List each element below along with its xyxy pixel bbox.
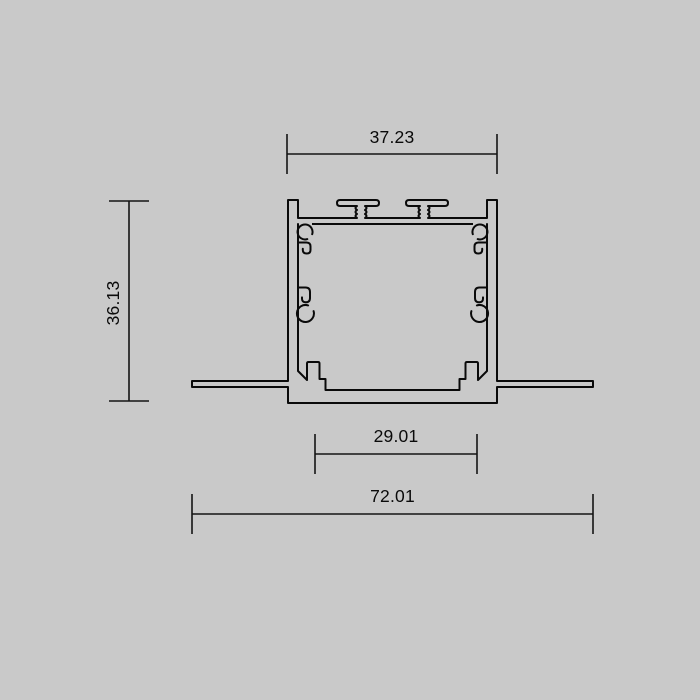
profile-outline xyxy=(192,200,593,403)
dimension-label: 36.13 xyxy=(103,281,123,326)
dimension-label: 37.23 xyxy=(370,127,415,147)
profile-left-inner-features xyxy=(297,224,326,390)
dimension-overall-width: 72.01 xyxy=(192,486,593,534)
profile-ceiling-and-floor-lines xyxy=(312,224,473,390)
profile-cross-section-svg: 37.23 36.13 29.01 72.01 xyxy=(0,0,700,700)
dimension-top-outer-width: 37.23 xyxy=(287,127,497,174)
dimension-inner-channel-width: 29.01 xyxy=(315,426,477,474)
dimension-label: 72.01 xyxy=(370,486,415,506)
dimension-overall-height: 36.13 xyxy=(103,201,149,401)
dimension-label: 29.01 xyxy=(374,426,419,446)
profile-outer-contour xyxy=(192,200,593,403)
drawing-canvas: 37.23 36.13 29.01 72.01 xyxy=(0,0,700,700)
profile-right-inner-features xyxy=(460,224,489,390)
